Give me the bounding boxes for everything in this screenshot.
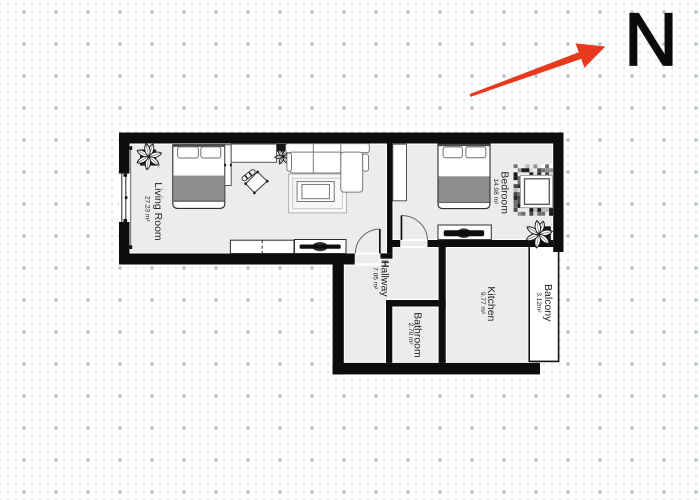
- svg-text:Bedroom: Bedroom: [499, 171, 511, 214]
- svg-text:N: N: [624, 0, 677, 81]
- svg-text:7.05 m²: 7.05 m²: [371, 267, 378, 290]
- svg-text:Hallway: Hallway: [378, 260, 390, 298]
- svg-text:14.98 m²: 14.98 m²: [492, 178, 499, 204]
- svg-text:2.70 m²: 2.70 m²: [407, 323, 414, 346]
- svg-text:3.12m²: 3.12m²: [535, 292, 542, 313]
- svg-text:Living Room: Living Room: [152, 182, 164, 241]
- svg-text:Balcony: Balcony: [542, 284, 554, 322]
- svg-text:9.77 m²: 9.77 m²: [479, 292, 486, 315]
- svg-text:27.23 m²: 27.23 m²: [144, 196, 151, 222]
